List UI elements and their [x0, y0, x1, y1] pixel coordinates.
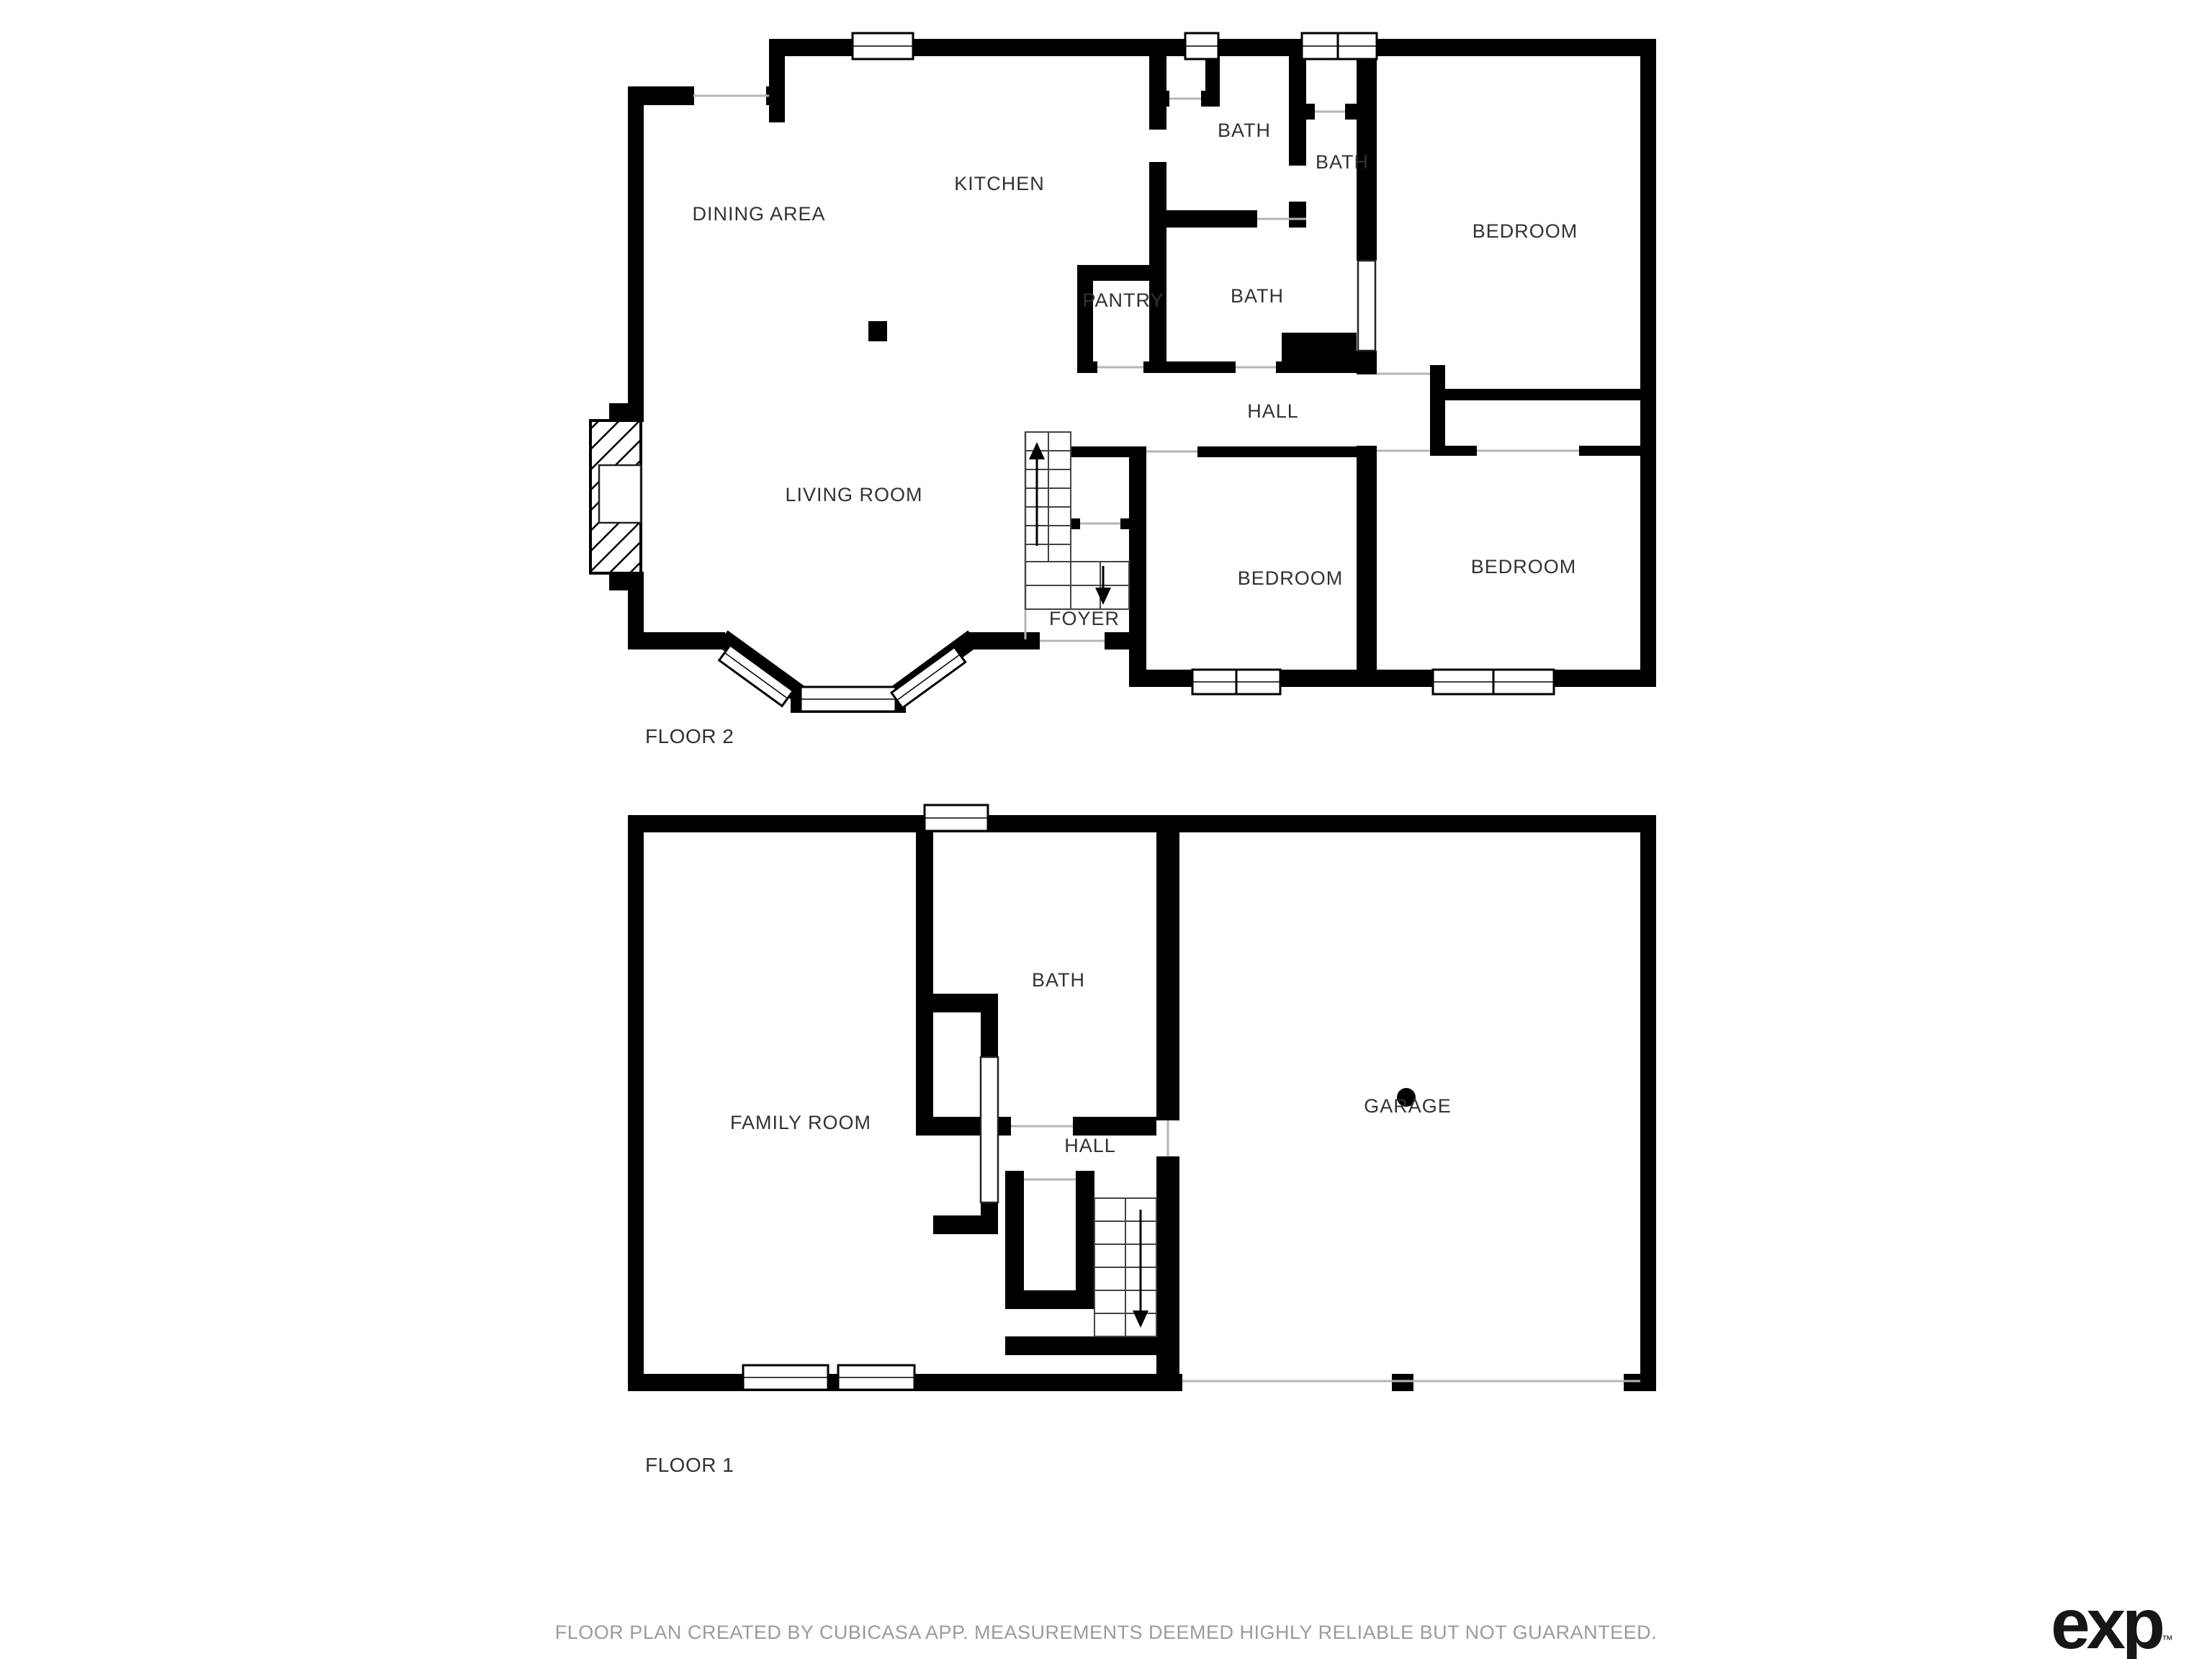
wall-segment	[1430, 365, 1445, 454]
room-label: DINING AREA	[692, 203, 825, 225]
floor-label: FLOOR 1	[645, 1454, 734, 1476]
room-label: BATH	[1218, 120, 1271, 141]
wall-segment	[1640, 39, 1656, 687]
wall-segment	[1282, 333, 1357, 366]
wall-segment	[1392, 1374, 1413, 1391]
room-label: FAMILY ROOM	[730, 1112, 871, 1133]
stair-arrowhead-icon	[1133, 1310, 1148, 1328]
wall-segment	[968, 632, 1040, 649]
wall-segment	[1430, 446, 1477, 456]
wall-segment	[769, 39, 785, 122]
wall-segment	[1149, 162, 1166, 373]
wall-segment	[1071, 518, 1080, 529]
wall-segment	[1005, 1171, 1024, 1309]
room-label: BEDROOM	[1238, 567, 1344, 589]
pocket-door	[981, 1057, 998, 1202]
room-label: HALL	[1064, 1135, 1116, 1156]
floor-label: FLOOR 2	[645, 725, 734, 747]
wall-segment	[628, 815, 644, 1391]
room-label: BATH	[1316, 151, 1369, 173]
wall-segment	[1276, 361, 1357, 373]
wall-segment	[1357, 446, 1377, 687]
floorplan-page: FLOOR 2DINING AREAKITCHENBATHBATHBEDROOM…	[0, 0, 2212, 1659]
logo-wordmark: exp™	[2051, 1588, 2173, 1659]
wall-segment	[1357, 351, 1377, 374]
floorplan-svg: FLOOR 2DINING AREAKITCHENBATHBATHBEDROOM…	[0, 0, 2212, 1659]
exp-realty-logo: exp™ REALTY	[2051, 1588, 2173, 1659]
wall-segment	[609, 572, 644, 590]
wall-segment	[1197, 446, 1357, 457]
wall-segment	[1579, 446, 1640, 456]
logo-trademark: ™	[2162, 1635, 2173, 1647]
room-label: BEDROOM	[1471, 556, 1577, 577]
wall-segment	[628, 632, 725, 649]
wall-segment	[1149, 210, 1257, 228]
wall-segment	[868, 321, 887, 341]
wall-segment	[628, 815, 1656, 832]
logo-word: exp	[2051, 1584, 2162, 1659]
wall-segment	[933, 1215, 998, 1234]
wall-segment	[1143, 361, 1236, 373]
wall-segment	[981, 994, 998, 1057]
room-label: HALL	[1247, 400, 1299, 422]
wall-segment	[1071, 446, 1146, 457]
wall-segment	[1076, 1171, 1094, 1309]
wall-segment	[916, 832, 933, 1135]
wall-segment	[1289, 50, 1306, 166]
wall-segment	[1129, 446, 1146, 687]
wall-segment	[609, 403, 644, 422]
wall-segment	[1289, 202, 1306, 228]
wall-segment	[1120, 518, 1146, 529]
room-label: BATH	[1032, 969, 1085, 991]
wall-segment	[1201, 91, 1220, 107]
wall-segment	[1445, 389, 1640, 400]
wall-segment	[1073, 1117, 1156, 1136]
room-label: BEDROOM	[1473, 220, 1578, 242]
wall-segment	[628, 86, 644, 422]
room-label: KITCHEN	[954, 173, 1045, 194]
wall-segment	[1105, 632, 1129, 649]
wall-segment	[1640, 815, 1656, 1391]
disclaimer-text: FLOOR PLAN CREATED BY CUBICASA APP. MEAS…	[0, 1622, 2212, 1644]
room-label: GARAGE	[1364, 1095, 1452, 1117]
wall-segment	[1624, 1374, 1656, 1391]
pocket-door	[1358, 261, 1375, 351]
wall-segment	[1156, 1156, 1179, 1391]
room-label: PANTRY	[1082, 289, 1164, 311]
wall-segment	[1149, 91, 1169, 107]
wall-segment	[1077, 265, 1093, 373]
wall-segment	[1306, 104, 1315, 120]
wall-segment	[1149, 50, 1166, 130]
wall-segment	[1005, 1336, 1179, 1355]
bay-window	[891, 647, 966, 709]
wall-segment	[1005, 1290, 1094, 1309]
room-label: BATH	[1231, 285, 1284, 307]
room-label: FOYER	[1049, 608, 1120, 629]
room-label: LIVING ROOM	[785, 484, 922, 505]
wall-segment	[1156, 832, 1179, 1120]
pocket-door	[599, 465, 641, 523]
stair-arrowhead-icon	[1095, 588, 1111, 605]
wall-segment	[1345, 104, 1357, 120]
